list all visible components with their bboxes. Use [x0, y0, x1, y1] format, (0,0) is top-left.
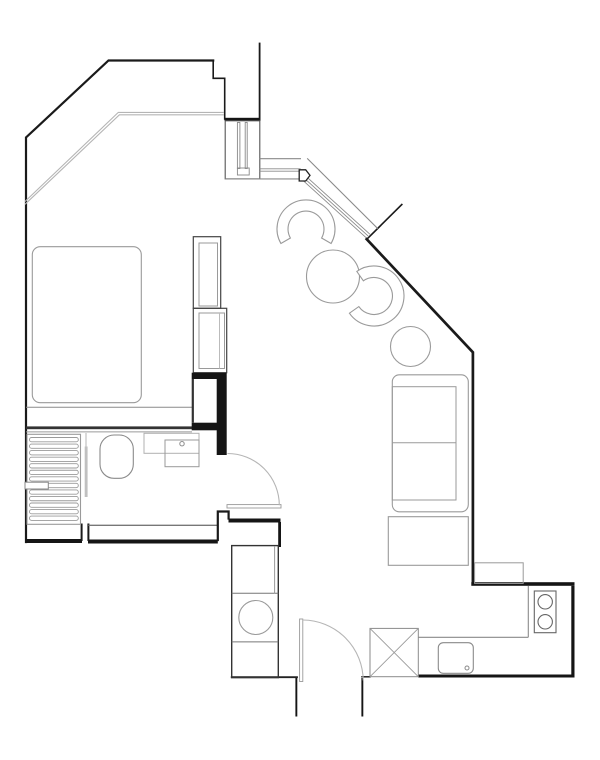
wall-southeast-diagonal-and-east [367, 239, 473, 584]
shower-slat [30, 464, 79, 468]
shaft-x-diagonals [370, 628, 418, 676]
bedroom-bath-partition [26, 426, 192, 429]
window-corner-marker [299, 170, 310, 181]
closet-top-bar [192, 373, 227, 379]
floor-plan [0, 0, 600, 760]
shower-slats [30, 438, 79, 521]
kitchen-sink [438, 643, 473, 674]
side-table-round [391, 327, 431, 367]
bedroom [26, 237, 227, 455]
closet-bottom-bar [192, 423, 220, 431]
entry-door-swing [303, 620, 363, 681]
shelving-unit-upper-inner [199, 243, 218, 306]
bed [32, 247, 141, 403]
wall-west-and-north [26, 61, 213, 543]
wall-entry-stub-left [295, 678, 297, 717]
shelving-unit-lower-inner [199, 313, 225, 369]
burner-bottom [538, 615, 552, 629]
sink-faucet [465, 666, 469, 670]
sofa-seat [392, 387, 456, 500]
shower-slat [30, 516, 79, 520]
shower-tray [27, 434, 81, 524]
closet-right-bar [217, 379, 227, 455]
wall-entry-stub-right [361, 678, 363, 717]
wall-kitchen-east [571, 586, 574, 678]
vanity-counter [144, 433, 199, 453]
window-north-frame [225, 121, 260, 179]
shower-shelf [25, 482, 48, 489]
burner-top [538, 595, 552, 609]
shower-slat [30, 470, 79, 474]
window-north-sill-box [237, 168, 249, 175]
bathroom-door-leaf [227, 505, 281, 508]
wall-bath-south-a [25, 539, 82, 543]
tub-chairs [277, 200, 404, 326]
round-table [307, 250, 360, 303]
exterior-walls [25, 44, 575, 717]
toilet [100, 435, 133, 478]
shelving-unit-lower [193, 308, 226, 372]
shower-slat [30, 444, 79, 448]
bathroom [25, 433, 281, 524]
wall-corridor-step [218, 512, 229, 541]
window-north-mullion-b [245, 123, 247, 169]
shower-slat [30, 496, 79, 500]
wall-kitchen-south [418, 675, 574, 678]
tub-chair-right [349, 266, 404, 326]
window-north-mullion-a [237, 123, 240, 169]
wall-bath-south-b [88, 540, 218, 544]
ceiling-break-line-inner [25, 115, 224, 205]
shower-glass-panel [85, 447, 88, 498]
wall-corridor-band [229, 519, 281, 523]
wardrobe-closet [192, 373, 227, 455]
coffee-table [388, 517, 468, 566]
ceiling-break-line-outer [25, 112, 224, 201]
wall-corridor-jamb [278, 522, 281, 547]
shower-slat [30, 438, 79, 442]
shelving-unit-upper [193, 237, 220, 309]
tub-chair-left [277, 200, 335, 244]
shower-slat [30, 490, 79, 494]
shower-slat [30, 503, 79, 507]
stove [534, 591, 556, 633]
entry-door-leaf [300, 619, 303, 682]
shower-slat [30, 457, 79, 461]
balcony-ledge [475, 563, 524, 584]
washing-machine [239, 601, 273, 635]
wall-balcony-spur [367, 205, 402, 240]
shower-slat [30, 477, 79, 481]
closet-left-edge [192, 379, 194, 423]
basin-faucet [180, 442, 184, 446]
entry [300, 619, 364, 682]
wall-north-step [213, 61, 225, 120]
shower-slat [30, 451, 79, 455]
living-area [277, 200, 523, 583]
shower-slat [30, 510, 79, 514]
bathroom-door-swing [228, 454, 280, 506]
